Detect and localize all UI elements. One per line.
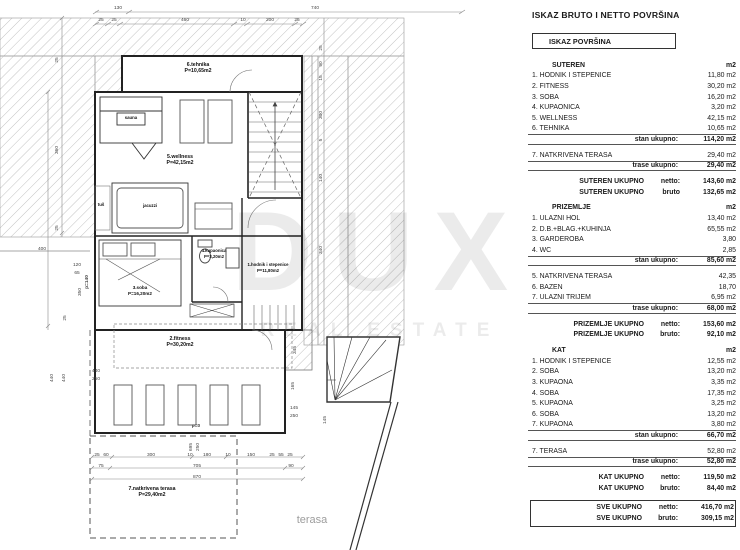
row-label: 7. KUPAONA [528,421,686,428]
plan-text: 10 [187,452,193,458]
row-label: trase ukupno: [528,305,686,312]
row-value: 3,80 [686,236,736,243]
row-label: KAT UKUPNO [528,485,644,492]
plan-text: 5.wellnessP=42,15m2 [167,154,194,166]
row-subtotal-kind: netto: [642,504,684,511]
plan-text: 440 [49,374,55,382]
row-label: KAT UKUPNO [528,474,644,481]
table-row: 3. GARDEROBA3,80 [528,234,736,245]
row-value: 17,35 m2 [686,390,736,397]
table-row: 1. HODNIK I STEPENICE12,55 m2 [528,356,736,367]
plan-text: 345 [292,346,298,354]
table-row: KAT UKUPNObruto:84,40 m2 [528,483,736,494]
plan-text: 25 [94,452,100,458]
row-label: 5. KUPAONA [528,400,686,407]
row-value: 11,80 m2 [686,72,736,79]
plan-text: 340 [318,246,324,254]
plan-text: 250 [195,443,201,451]
row-value: m2 [686,204,736,211]
row-value: 18,70 [686,284,736,291]
row-label: 6. BAZEN [528,284,686,291]
row-label: PRIZEMLJE UKUPNO [528,321,644,328]
table-row: stan ukupno:66,70 m2 [528,430,736,441]
row-value: 84,40 m2 [686,485,736,492]
row-value: 10,65 m2 [686,125,736,132]
table-row: KAT UKUPNOnetto:119,50 m2 [528,472,736,483]
row-label: 3. GARDEROBA [528,236,686,243]
plan-text: 740 [311,5,319,11]
plan-text: 25 [111,17,117,23]
plan-text: jacuzzi [142,203,157,208]
row-label: 4. KUPAONICA [528,104,686,111]
plan-text: p=140 [84,275,90,289]
plan-text: 150 [247,452,255,458]
row-label: PRIZEMLJE [528,204,686,211]
plan-text: 400 [38,246,46,252]
plan-text: 15 [318,75,324,81]
table-row: 4. KUPAONICA3,20 m2 [528,102,736,113]
table-row: SUTEREN UKUPNOnetto:143,60 m2 [528,176,736,187]
plan-text: 460 [181,17,189,23]
row-value: 6,95 m2 [686,294,736,301]
row-label: stan ukupno: [528,257,686,264]
row-value: 3,25 m2 [686,400,736,407]
table-row: trase ukupno:29,40 m2 [528,161,736,172]
plan-text: 120 [73,262,81,268]
screenshot-root: 6.tehnikaP=10,65m2sauna5.wellnessP=42,15… [0,0,740,550]
external-stairs [327,337,400,550]
row-value: 52,80 m2 [686,448,736,455]
plan-text: 25 [54,225,60,231]
row-value: 309,15 m2 [684,515,734,522]
plan-text: 130 [114,5,122,11]
row-value: 29,40 m2 [686,152,736,159]
row-value: 13,20 m2 [686,368,736,375]
row-label: SUTEREN UKUPNO [528,189,644,196]
plan-text: 2.fitnessP=30,20m2 [167,336,194,348]
row-value: 30,20 m2 [686,83,736,90]
row-value: 12,55 m2 [686,358,736,365]
row-label: trase ukupno: [528,162,686,169]
row-label: 5. NATKRIVENA TERASA [528,273,686,280]
row-label: 2. SOBA [528,368,686,375]
row-label: 7. ULAZNI TRIJEM [528,294,686,301]
table-row: 7. TERASA52,80 m2 [528,446,736,457]
plan-text: 300 [147,452,155,458]
row-value: 85,60 m2 [686,257,736,264]
table-row: SVE UKUPNOnetto:416,70 m2 [531,503,734,514]
table-row: SUTERENm2 [528,60,736,71]
table-title: ISKAZ BRUTO I NETTO POVRŠINA [532,10,736,20]
row-value: 29,40 m2 [686,162,736,169]
plan-text: 250 [290,413,298,419]
area-table: ISKAZ BRUTO I NETTO POVRŠINA ISKAZ POVRŠ… [528,6,736,527]
table-row: SVE UKUPNObruto:309,15 m2 [531,513,734,524]
row-label: 1. HODNIK I STEPENICE [528,358,686,365]
row-label: SUTEREN [528,62,686,69]
plan-text: 695 [188,443,194,451]
table-row: 6. BAZEN18,70 [528,282,736,293]
plan-text: tuš [98,202,105,207]
plan-text: 75 [98,463,104,469]
plan-text: 10 [225,452,231,458]
plan-text: 25 [98,17,104,23]
plan-text: 4.kupaonicaP=3,20m2 [202,248,227,259]
plan-text: 705 [193,463,201,469]
row-subtotal-kind: bruto: [644,485,686,492]
row-value: 416,70 m2 [684,504,734,511]
row-value: 42,35 [686,273,736,280]
table-row: 2. FITNESS30,20 m2 [528,81,736,92]
plan-text: 5 [318,138,324,141]
row-value: 13,40 m2 [686,215,736,222]
row-value: 143,60 m2 [686,178,736,185]
table-row: 1. ULAZNI HOL13,40 m2 [528,213,736,224]
plan-text: p=0 [192,423,201,429]
row-value: m2 [686,62,736,69]
plan-text: 250 [92,376,100,382]
floor-plan-drawing: 6.tehnikaP=10,65m2sauna5.wellnessP=42,15… [0,0,520,550]
row-label: 1. ULAZNI HOL [528,215,686,222]
plan-text: 145 [322,416,328,424]
plan-text: sauna [125,115,138,120]
table-row: PRIZEMLJE UKUPNObruto:92,10 m2 [528,330,736,341]
plan-text: 25 [269,452,275,458]
row-label: 4. WC [528,247,686,254]
row-label: stan ukupno: [528,432,686,439]
plan-text: 145 [290,405,298,411]
plan-text: 440 [61,374,67,382]
row-label: 5. WELLNESS [528,115,686,122]
row-value: 68,00 m2 [686,305,736,312]
row-value: 92,10 m2 [686,331,736,338]
plan-text: 25 [294,17,300,23]
plan-text: 25 [318,45,324,51]
table-row: 3. SOBA16,20 m2 [528,92,736,103]
table-row: stan ukupno:85,60 m2 [528,256,736,267]
table-row: stan ukupno:114,20 m2 [528,134,736,145]
table-row: 5. NATKRIVENA TERASA42,35 [528,271,736,282]
row-value: 66,70 m2 [686,432,736,439]
plan-text: 65 [74,270,80,276]
row-value: 13,20 m2 [686,411,736,418]
table-rows: SUTERENm21. HODNIK I STEPENICE11,80 m22.… [528,60,736,527]
row-label: trase ukupno: [528,458,686,465]
row-value: 3,35 m2 [686,379,736,386]
row-label: 3. SOBA [528,94,686,101]
table-row: 5. KUPAONA3,25 m2 [528,398,736,409]
row-value: 52,80 m2 [686,458,736,465]
table-row: PRIZEMLJE UKUPNOnetto:153,60 m2 [528,319,736,330]
plan-text: 870 [193,474,201,480]
table-row: 7. ULAZNI TRIJEM6,95 m2 [528,293,736,304]
table-row: 7. NATKRIVENA TERASA29,40 m2 [528,150,736,161]
table-row: 2. SOBA13,20 m2 [528,367,736,378]
row-value: 3,20 m2 [686,104,736,111]
table-row: 6. SOBA13,20 m2 [528,409,736,420]
row-label: stan ukupno: [528,136,686,143]
row-value: 119,50 m2 [686,474,736,481]
row-label: PRIZEMLJE UKUPNO [528,331,644,338]
plan-text: 200 [266,17,274,23]
plan-text: 6.tehnikaP=10,65m2 [185,62,212,74]
table-row: trase ukupno:68,00 m2 [528,303,736,314]
plan-text: 25 [287,452,293,458]
plan-text: 360 [54,146,60,154]
row-value: 3,80 m2 [686,421,736,428]
table-row: 3. KUPAONA3,35 m2 [528,377,736,388]
row-value: 132,65 m2 [686,189,736,196]
row-label: 2. D.B.+BLAG.+KUHINJA [528,226,686,233]
row-value: 114,20 m2 [686,136,736,143]
plan-text: 10 [240,17,246,23]
table-row: 2. D.B.+BLAG.+KUHINJA65,55 m2 [528,224,736,235]
row-value: 65,55 m2 [686,226,736,233]
row-label: 7. NATKRIVENA TERASA [528,152,686,159]
row-value: m2 [686,347,736,354]
row-value: 42,15 m2 [686,115,736,122]
table-row: PRIZEMLJEm2 [528,203,736,214]
table-row: trase ukupno:52,80 m2 [528,457,736,468]
row-label: SUTEREN UKUPNO [528,178,644,185]
row-subtotal-kind: bruto: [644,331,686,338]
plan-text: 25 [62,315,68,321]
plan-text: 90 [318,61,324,67]
table-box-header: ISKAZ POVRŠINA [532,33,676,49]
table-row: 6. TEHNIKA10,65 m2 [528,124,736,135]
row-label: 6. TEHNIKA [528,125,686,132]
plan-text: 180 [203,452,211,458]
row-value: 2,85 [686,247,736,254]
row-subtotal-kind: netto: [644,321,686,328]
row-value: 16,20 m2 [686,94,736,101]
row-label: 1. HODNIK I STEPENICE [528,72,686,79]
row-label: 6. SOBA [528,411,686,418]
row-label: 4. SOBA [528,390,686,397]
plan-text: 55 [278,452,284,458]
plan-text: 60 [103,452,109,458]
table-row: KATm2 [528,345,736,356]
row-label: SVE UKUPNO [531,515,642,522]
grand-total-box: SVE UKUPNOnetto:416,70 m2SVE UKUPNObruto… [530,500,736,527]
plan-text: 140 [318,174,324,182]
plan-text: 440 [92,368,100,374]
row-label: KAT [528,347,686,354]
row-label: 2. FITNESS [528,83,686,90]
plan-text: 300 [318,111,324,119]
table-row: 4. SOBA17,35 m2 [528,388,736,399]
row-label: SVE UKUPNO [531,504,642,511]
plan-text: 350 [77,288,83,296]
plan-text: 90 [288,463,294,469]
row-subtotal-kind: netto: [644,474,686,481]
table-row: 5. WELLNESS42,15 m2 [528,113,736,124]
table-row: SUTEREN UKUPNObruto132,65 m2 [528,187,736,198]
plan-text: 25 [54,57,60,63]
plan-text: terasa [297,514,328,526]
row-subtotal-kind: netto: [644,178,686,185]
row-label: 7. TERASA [528,448,686,455]
table-row: 4. WC2,85 [528,245,736,256]
row-subtotal-kind: bruto [644,189,686,196]
table-row: 7. KUPAONA3,80 m2 [528,420,736,431]
plan-text: 165 [290,382,296,390]
row-subtotal-kind: bruto: [642,515,684,522]
table-row: 1. HODNIK I STEPENICE11,80 m2 [528,71,736,82]
row-label: 3. KUPAONA [528,379,686,386]
row-value: 153,60 m2 [686,321,736,328]
plan-text: 7.natkrivena terasaP=29,40m2 [128,486,175,498]
table-gap [528,493,736,498]
